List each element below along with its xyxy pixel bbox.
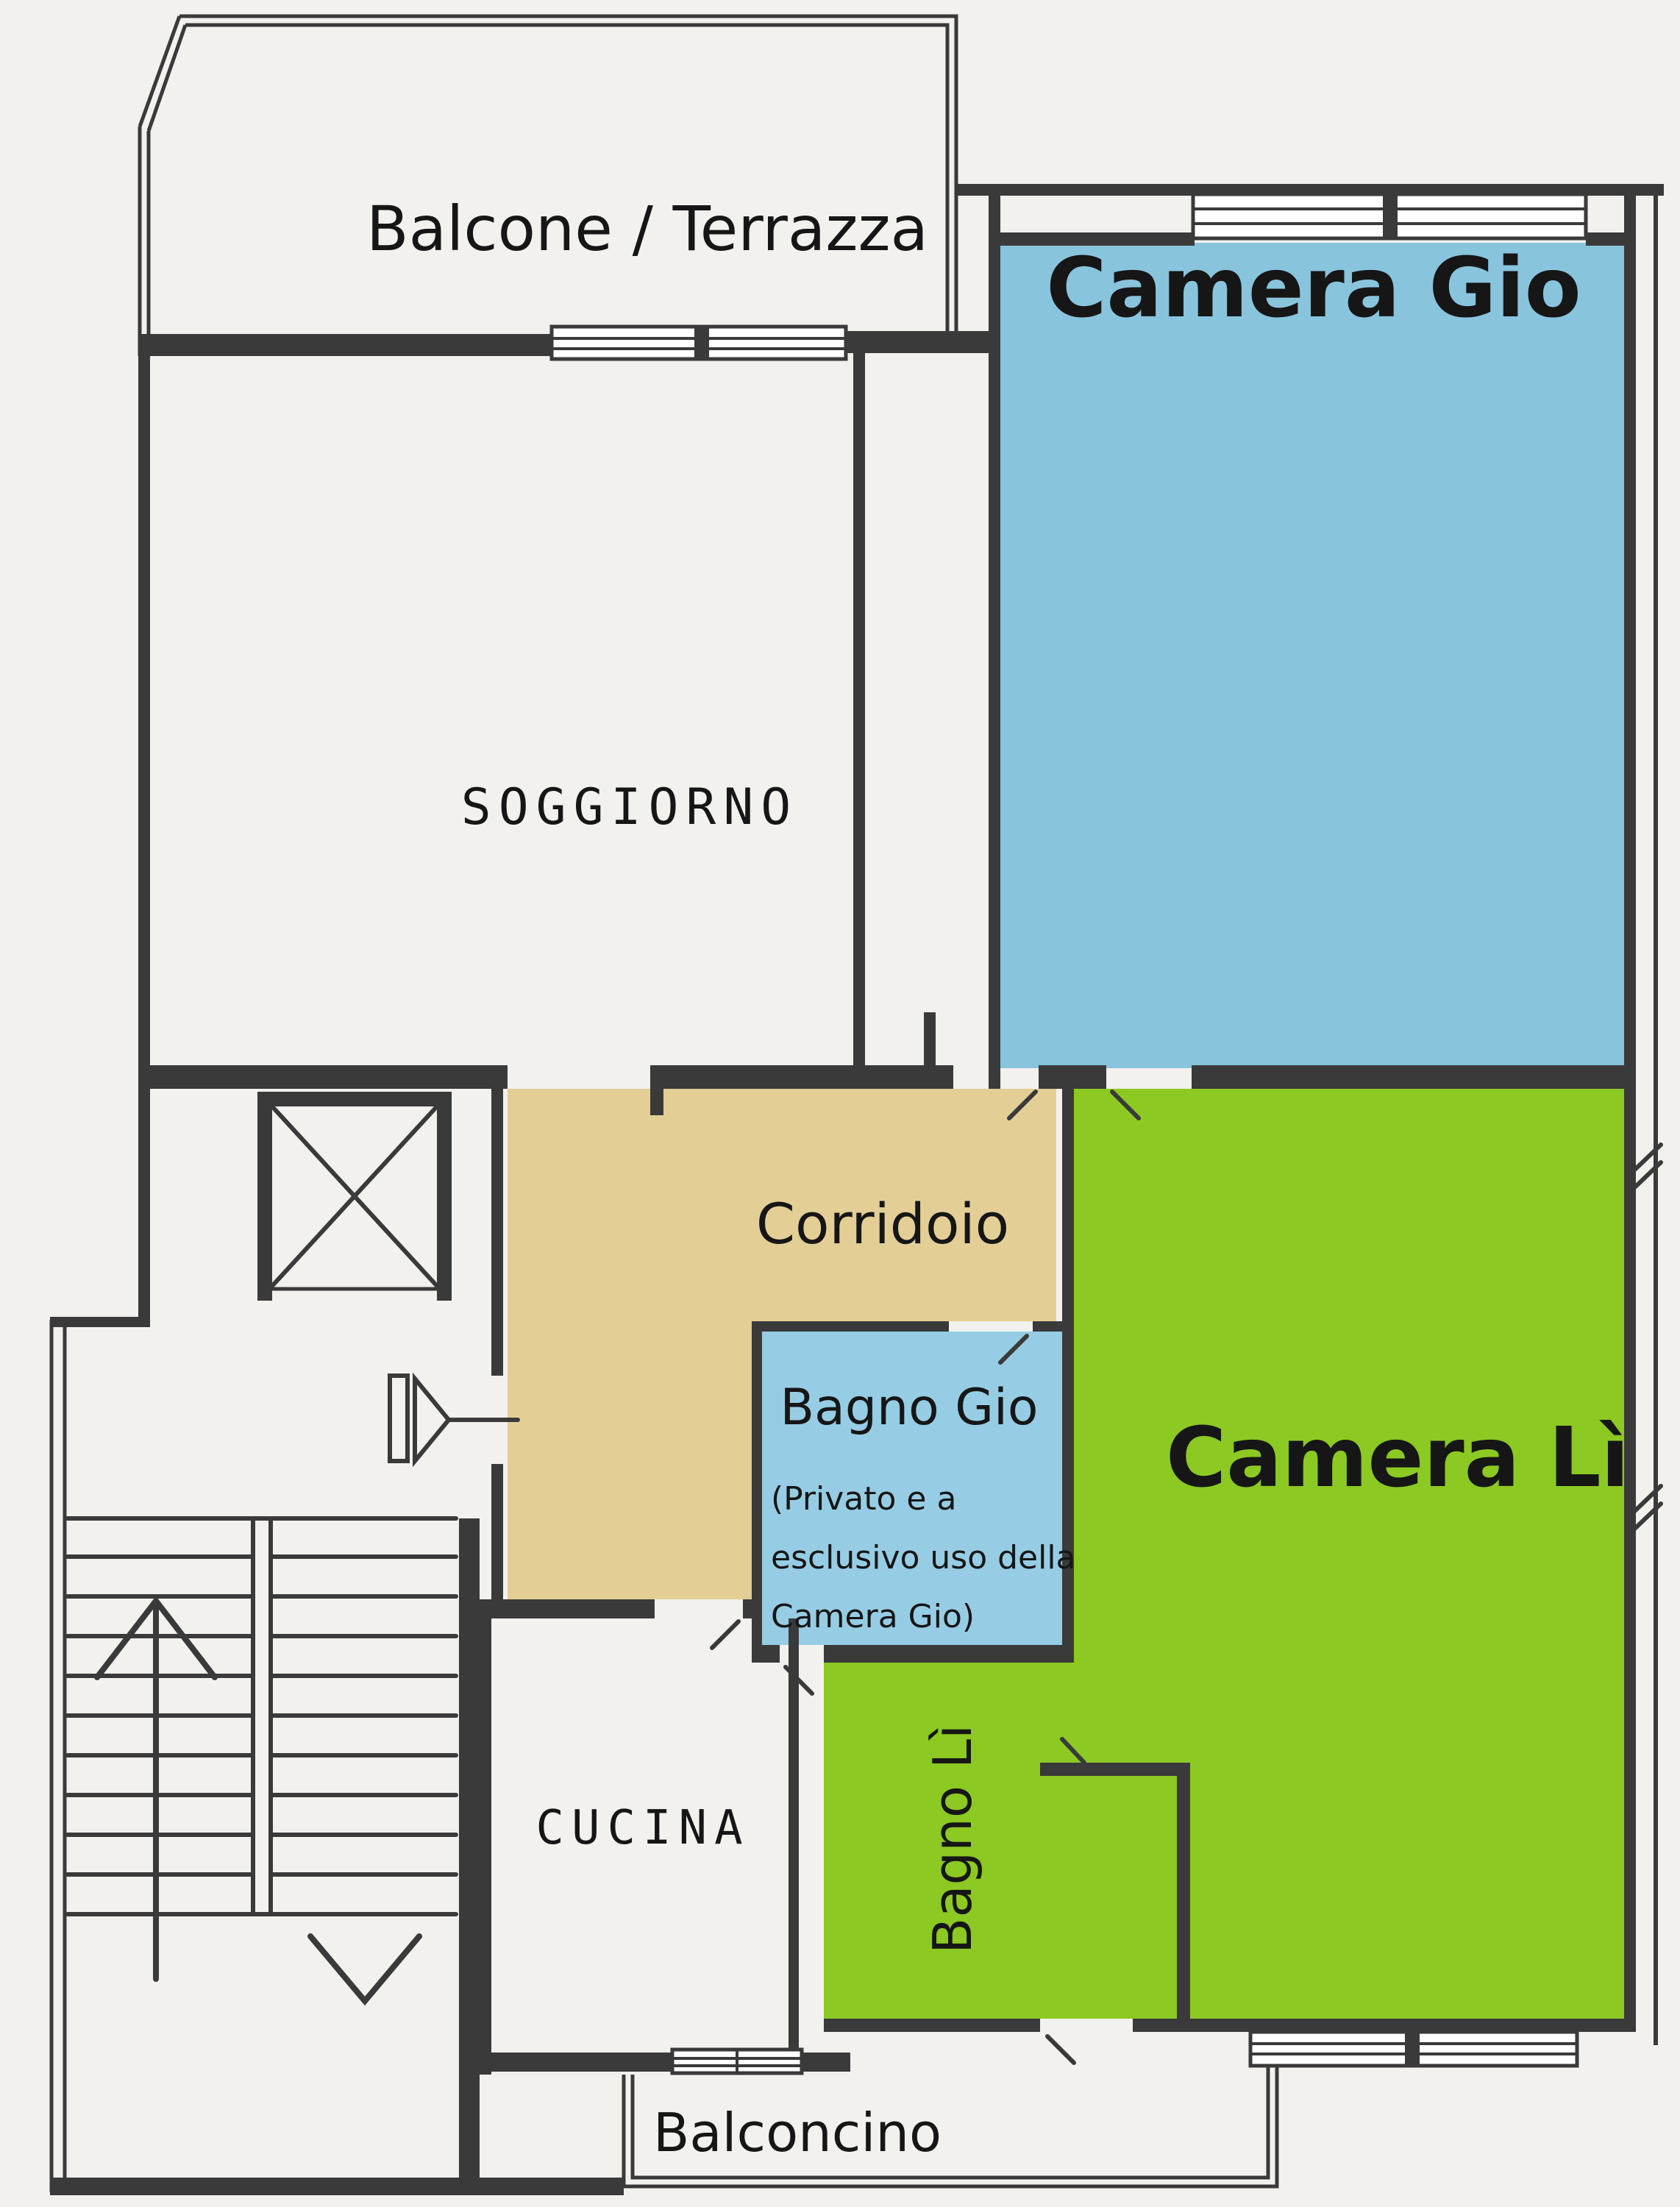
soggiorno-label: SOGGIORNO — [461, 778, 798, 836]
cucina-label: CUCINA — [535, 1801, 750, 1855]
cucina-window-icon — [672, 2050, 802, 2073]
camera-li-window-icon — [1250, 2032, 1577, 2066]
bagno-gio-label: Bagno Gio — [780, 1379, 1039, 1437]
bagno-gio-note-line2: esclusivo uso della — [771, 1539, 1076, 1577]
soggiorno-window-icon — [552, 327, 846, 359]
camera-gio-room — [999, 243, 1624, 1068]
balconcino-label: Balconcino — [653, 2102, 942, 2164]
camera-gio-window-icon — [1193, 194, 1586, 238]
bagno-gio-note-line1: (Privato e a — [771, 1480, 956, 1518]
bagno-gio-note-line3: Camera Gio) — [771, 1598, 975, 1635]
bagno-li-label: Bagno Lì — [922, 1724, 983, 1954]
camera-li-label: Camera Lì — [1166, 1410, 1629, 1506]
floor-plan: Balcone / Terrazza SOGGIORNO Camera Gio … — [0, 0, 1680, 2207]
corridoio-label: Corridoio — [756, 1191, 1009, 1257]
camera-gio-label: Camera Gio — [1046, 241, 1581, 336]
balcone-label: Balcone / Terrazza — [366, 193, 928, 265]
